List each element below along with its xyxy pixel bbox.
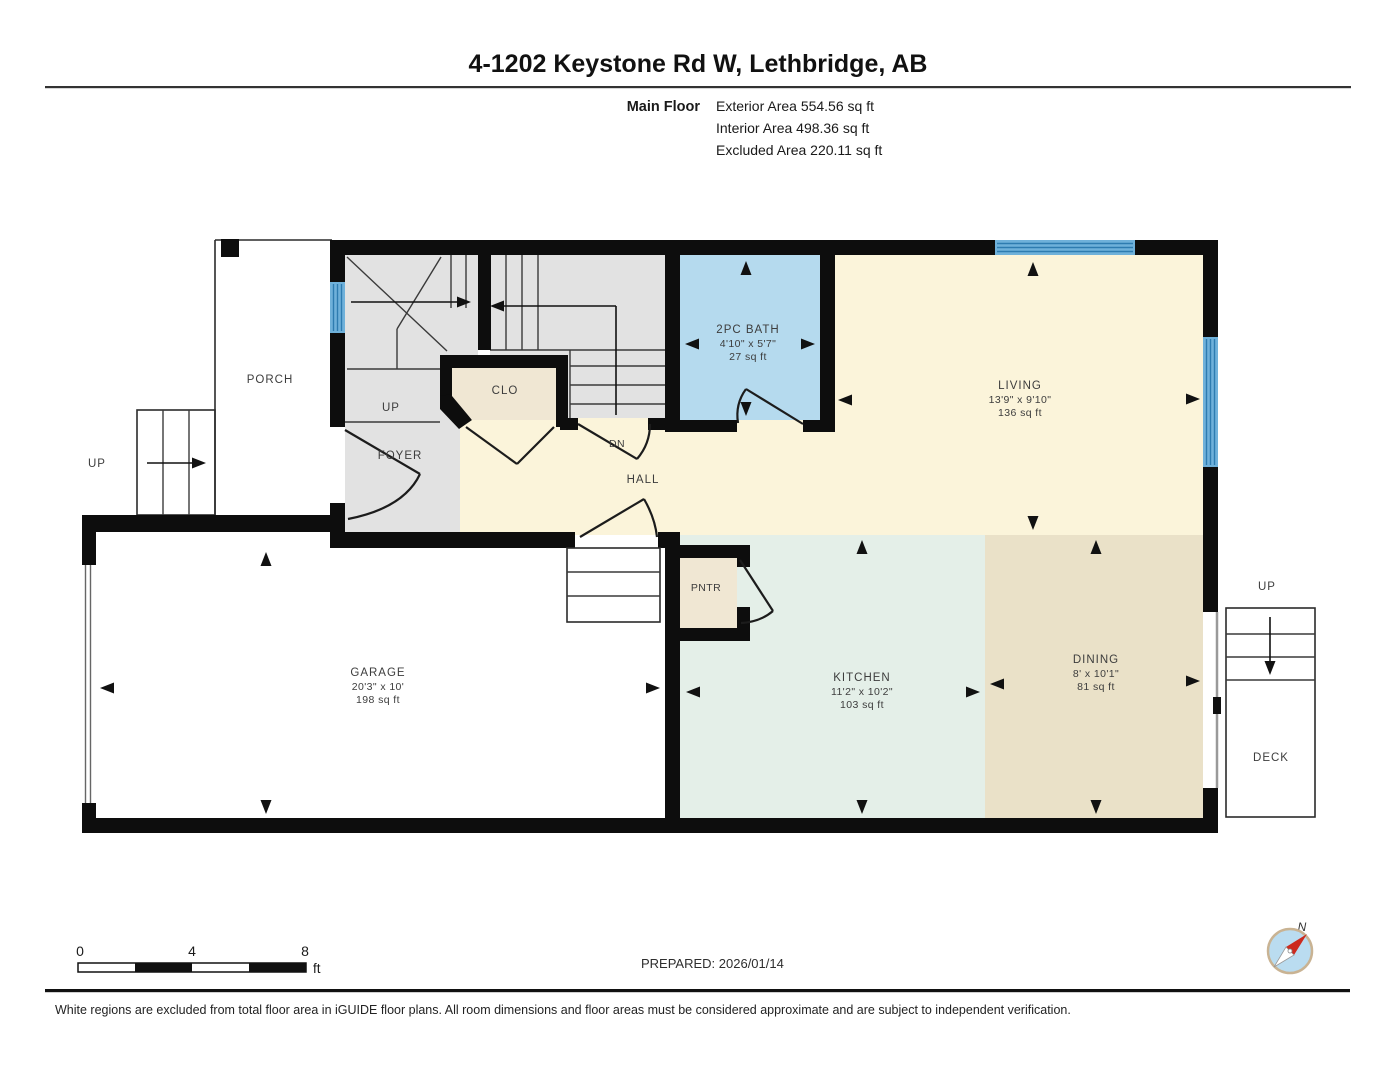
porch-wall	[330, 503, 345, 532]
dining-dims: 8' x 10'1"	[1073, 668, 1119, 680]
footer-divider	[45, 989, 1350, 992]
garage-steps-box	[567, 548, 660, 622]
dim-arrow-down	[261, 800, 272, 814]
hall-label: HALL	[627, 474, 660, 486]
scale-tick-8: 8	[301, 943, 309, 959]
living-dims: 13'9" x 9'10"	[989, 394, 1052, 406]
garage-label: GARAGE	[350, 667, 405, 679]
deck-label: DECK	[1253, 752, 1289, 764]
stairs-bottom-wall	[560, 418, 578, 430]
disclaimer-text: White regions are excluded from total fl…	[55, 1003, 1071, 1017]
garage-dims: 20'3" x 10'	[352, 681, 404, 693]
pantry-wall	[737, 607, 750, 641]
foyer-label: FOYER	[378, 450, 423, 462]
title-divider	[45, 86, 1351, 88]
stairs-down-label: DN	[609, 438, 625, 450]
window-living-right	[1203, 337, 1218, 467]
scale-bar-segment	[249, 963, 306, 972]
exterior-stairs-arrow	[192, 458, 206, 469]
bath-dims: 4'10" x 5'7"	[720, 338, 777, 350]
bath-area: 27 sq ft	[729, 351, 767, 363]
stairs-bath-wall	[665, 240, 680, 432]
exterior-stairs-up-label: UP	[88, 458, 106, 470]
dim-arrow-right	[646, 683, 660, 694]
scale-bar: 0 4 8 ft	[76, 943, 321, 976]
exterior-wall-bottom	[82, 818, 1218, 833]
porch-wall	[330, 240, 345, 282]
garage-area: 198 sq ft	[356, 694, 400, 706]
hall-garage-wall	[330, 532, 575, 548]
porch-garage-wall	[82, 515, 332, 532]
deck-stairs-up-label: UP	[1258, 581, 1276, 593]
excluded-area: Excluded Area 220.11 sq ft	[716, 142, 882, 158]
porch-wall	[330, 333, 345, 427]
bath-bottom-wall	[803, 420, 820, 432]
stairs-bottom-wall	[648, 418, 680, 430]
pantry-label: PNTR	[691, 582, 721, 594]
living-area: 136 sq ft	[998, 407, 1042, 419]
compass-pivot	[1288, 949, 1292, 953]
porch-label: PORCH	[247, 374, 294, 386]
scale-unit: ft	[313, 961, 321, 976]
compass: N	[1268, 920, 1312, 973]
closet-wall	[556, 355, 568, 427]
exterior-wall-right	[1203, 467, 1218, 612]
scale-tick-0: 0	[76, 943, 84, 959]
kitchen-garage-wall	[665, 532, 680, 818]
kitchen-label: KITCHEN	[833, 672, 890, 684]
floor-label: Main Floor	[627, 99, 701, 115]
porch-pillar	[221, 239, 239, 257]
patio-slider-panel	[1213, 697, 1221, 714]
bath-label: 2PC BATH	[716, 324, 779, 336]
exterior-wall-right	[1203, 240, 1218, 338]
scale-tick-4: 4	[188, 943, 196, 959]
bath-bottom-wall	[680, 420, 737, 432]
floor-plan-svg: 4-1202 Keystone Rd W, Lethbridge, AB Mai…	[0, 0, 1396, 1080]
closet-wall	[440, 355, 568, 368]
closet-wall	[440, 355, 452, 400]
scale-bar-segment	[135, 963, 192, 972]
prepared-date: PREPARED: 2026/01/14	[641, 956, 784, 971]
floorplan-page: 4-1202 Keystone Rd W, Lethbridge, AB Mai…	[0, 0, 1396, 1080]
closet-label: CLO	[492, 385, 519, 397]
stair-divider-wall	[478, 240, 491, 350]
interior-area: Interior Area 498.36 sq ft	[716, 120, 869, 136]
dining-area: 81 sq ft	[1077, 681, 1115, 693]
stairs-up-label: UP	[382, 402, 400, 414]
window-porch	[330, 282, 345, 333]
page-title: 4-1202 Keystone Rd W, Lethbridge, AB	[469, 50, 928, 78]
living-label: LIVING	[998, 380, 1042, 392]
exterior-area: Exterior Area 554.56 sq ft	[716, 98, 874, 114]
window-living-top	[995, 240, 1135, 255]
garage-wall-left	[82, 803, 96, 833]
bath-living-wall	[820, 240, 835, 432]
kitchen-dims: 11'2" x 10'2"	[831, 686, 893, 698]
dim-arrow-left	[100, 683, 114, 694]
dim-arrow-up	[261, 552, 272, 566]
kitchen-area: 103 sq ft	[840, 699, 884, 711]
dining-label: DINING	[1073, 654, 1119, 666]
